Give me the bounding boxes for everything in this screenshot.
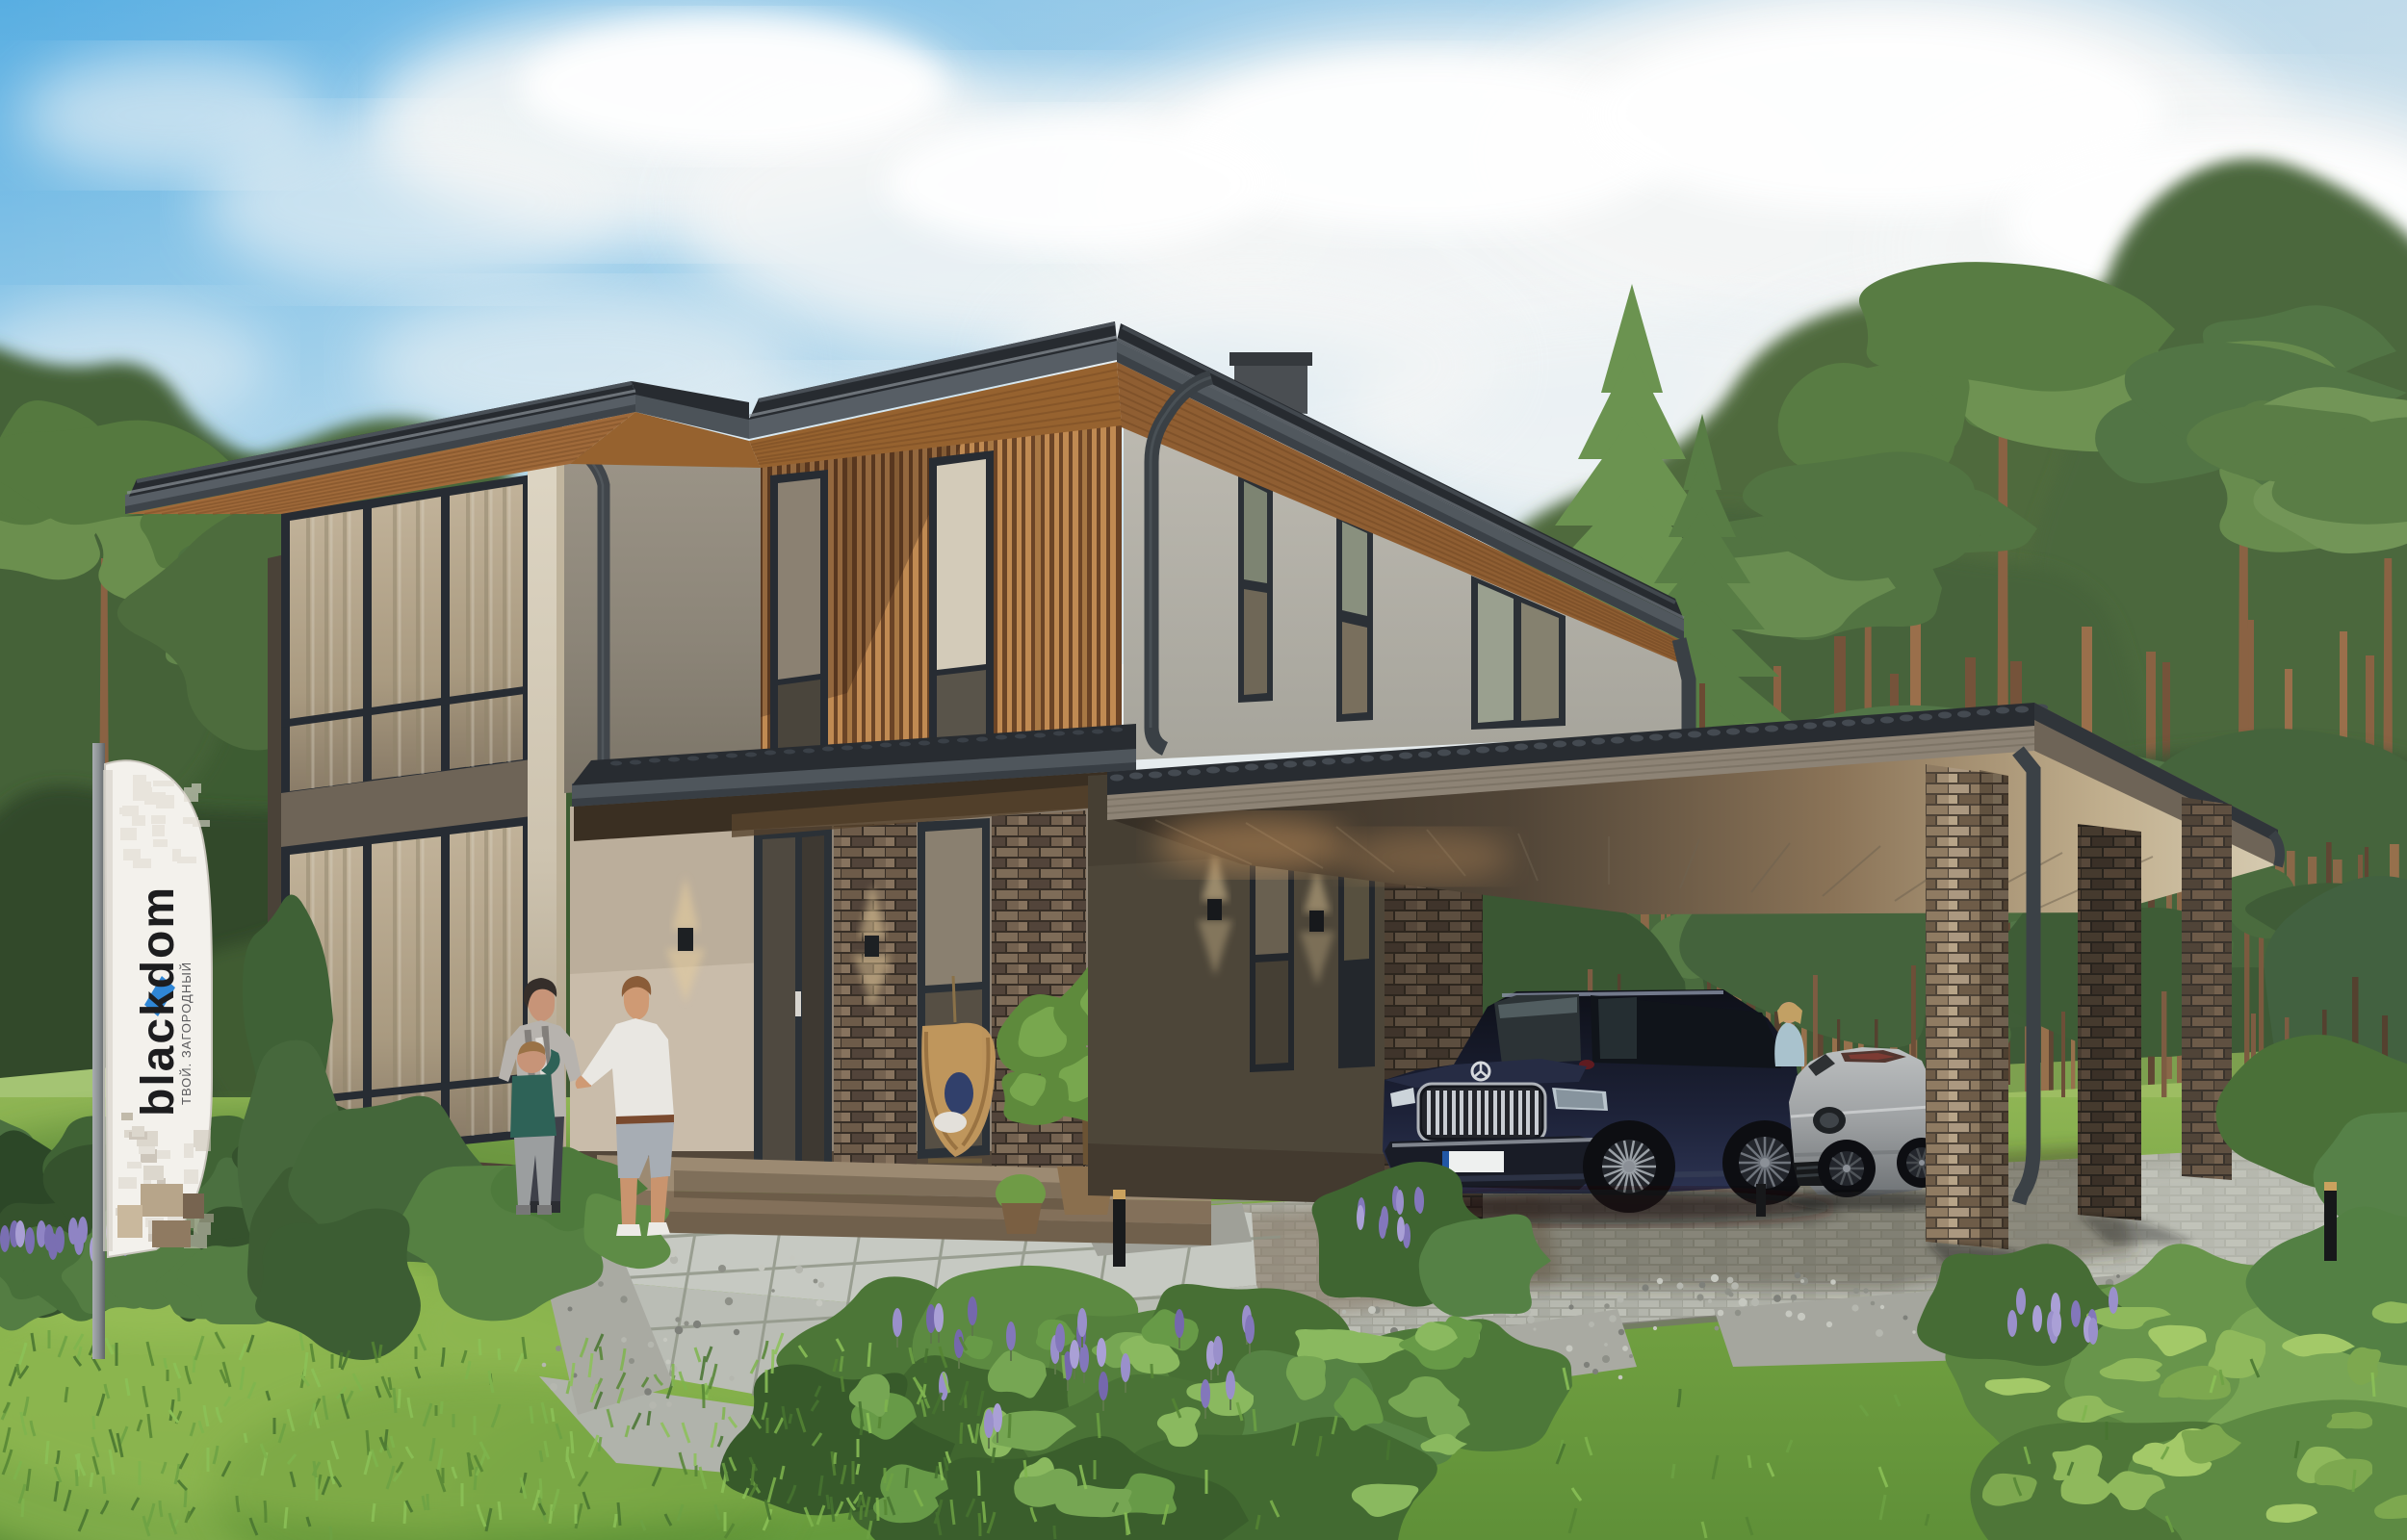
svg-text:ТВОЙ. ЗАГОРОДНЫЙ: ТВОЙ. ЗАГОРОДНЫЙ: [179, 962, 194, 1105]
svg-text:blackdom: blackdom: [133, 885, 184, 1116]
